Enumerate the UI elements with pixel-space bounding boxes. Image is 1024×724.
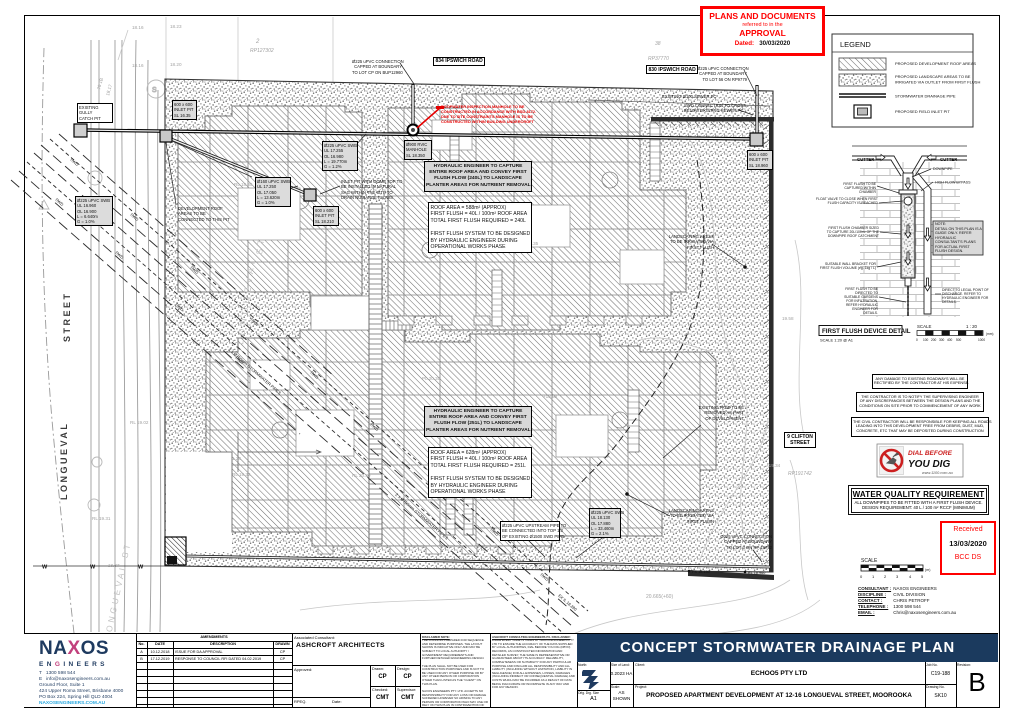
svg-text:4: 4 bbox=[909, 574, 912, 579]
svg-text:5: 5 bbox=[921, 574, 924, 579]
svg-text:GUTTER: GUTTER bbox=[857, 157, 874, 162]
svg-text:LEGEND: LEGEND bbox=[840, 40, 871, 49]
svg-text:www.1100.com.au: www.1100.com.au bbox=[922, 471, 954, 475]
svg-text:IRRIGATED VIA OUTLET FROM FIRS: IRRIGATED VIA OUTLET FROM FIRST FLUSH bbox=[895, 80, 980, 85]
svg-text:0: 0 bbox=[860, 574, 863, 579]
svg-text:SCALE: SCALE bbox=[861, 558, 878, 564]
svg-text:3: 3 bbox=[896, 574, 899, 579]
svg-text:FIRST FLUSH DEVICE DETAIL: FIRST FLUSH DEVICE DETAIL bbox=[822, 328, 911, 335]
svg-text:300: 300 bbox=[939, 338, 945, 342]
svg-text:(m): (m) bbox=[925, 568, 930, 572]
svg-text:PROPOSED DEVELOPMENT ROOF AREA: PROPOSED DEVELOPMENT ROOF AREAS bbox=[895, 61, 976, 66]
svg-text:PROPOSED FIELD INLET PIT: PROPOSED FIELD INLET PIT bbox=[895, 109, 950, 114]
svg-text:GUTTER: GUTTER bbox=[940, 157, 957, 162]
svg-text:STORMWATER DRAINAGE PIPE: STORMWATER DRAINAGE PIPE bbox=[895, 94, 956, 99]
svg-text:SCALE: SCALE bbox=[917, 324, 931, 329]
svg-text:1 : 20: 1 : 20 bbox=[966, 324, 978, 329]
svg-text:DOWNPIPE: DOWNPIPE bbox=[933, 167, 953, 171]
svg-text:(mm): (mm) bbox=[986, 332, 993, 336]
svg-text:SCALE 1:20 @ A1: SCALE 1:20 @ A1 bbox=[820, 338, 854, 343]
svg-text:0: 0 bbox=[916, 338, 918, 342]
svg-text:400: 400 bbox=[947, 338, 953, 342]
svg-text:PROPOSED LANDSCAPE AREAS TO BE: PROPOSED LANDSCAPE AREAS TO BE bbox=[895, 74, 971, 79]
svg-text:1: 1 bbox=[872, 574, 875, 579]
svg-text:DIAL BEFORE: DIAL BEFORE bbox=[908, 450, 953, 457]
svg-text:200: 200 bbox=[931, 338, 937, 342]
svg-text:2: 2 bbox=[884, 574, 887, 579]
svg-text:500: 500 bbox=[956, 338, 962, 342]
svg-text:HIGH FLOW BYPASS: HIGH FLOW BYPASS bbox=[935, 181, 971, 185]
svg-text:YOU DIG: YOU DIG bbox=[908, 459, 950, 470]
svg-text:100: 100 bbox=[923, 338, 929, 342]
svg-text:1000: 1000 bbox=[978, 338, 985, 342]
